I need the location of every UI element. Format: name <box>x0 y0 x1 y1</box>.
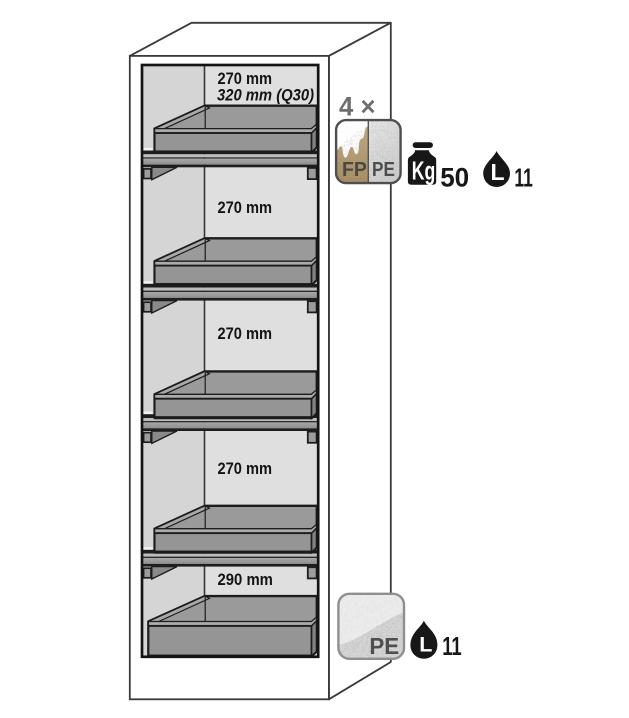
svg-text:Kg: Kg <box>412 156 436 186</box>
svg-text:PE: PE <box>369 633 399 659</box>
svg-text:270 mm: 270 mm <box>218 70 273 88</box>
svg-text:270 mm: 270 mm <box>218 199 273 217</box>
svg-text:270 mm: 270 mm <box>218 460 273 478</box>
svg-text:L: L <box>491 159 505 185</box>
svg-text:11: 11 <box>442 631 462 661</box>
svg-text:FP: FP <box>342 159 367 181</box>
svg-text:290 mm: 290 mm <box>218 571 273 589</box>
svg-text:320 mm (Q30): 320 mm (Q30) <box>217 86 314 104</box>
svg-text:PE: PE <box>372 159 395 181</box>
svg-text:L: L <box>419 633 432 657</box>
svg-text:270 mm: 270 mm <box>218 325 273 343</box>
svg-text:50: 50 <box>440 163 469 193</box>
svg-text:4 ×: 4 × <box>339 92 376 122</box>
svg-text:11: 11 <box>514 163 533 193</box>
